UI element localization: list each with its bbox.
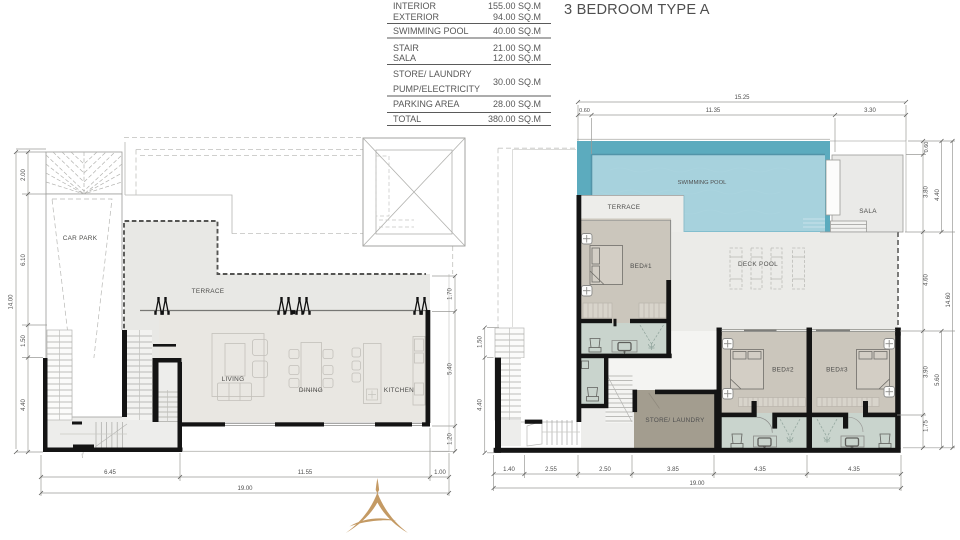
svg-text:2.50: 2.50 (599, 467, 611, 473)
svg-text:28.00 SQ.M: 28.00 SQ.M (493, 99, 541, 109)
svg-text:15.25: 15.25 (734, 95, 750, 101)
svg-text:3 BEDROOM TYPE A: 3 BEDROOM TYPE A (564, 2, 710, 18)
svg-text:4.60: 4.60 (924, 274, 930, 286)
svg-text:DECK POOL: DECK POOL (738, 261, 778, 268)
svg-text:11.35: 11.35 (706, 108, 721, 114)
svg-text:14.60: 14.60 (946, 292, 952, 308)
svg-text:19.00: 19.00 (689, 481, 705, 487)
svg-text:TERRACE: TERRACE (608, 204, 641, 211)
svg-text:INTERIOR: INTERIOR (393, 1, 437, 11)
svg-text:21.00 SQ.M: 21.00 SQ.M (493, 43, 541, 53)
svg-text:3.80: 3.80 (924, 186, 930, 198)
svg-text:11.55: 11.55 (298, 470, 313, 476)
svg-text:EXTERIOR: EXTERIOR (393, 12, 440, 22)
svg-text:STORE/ LAUNDRY: STORE/ LAUNDRY (645, 417, 705, 424)
svg-text:1.00: 1.00 (434, 470, 446, 476)
svg-text:3.90: 3.90 (924, 366, 930, 378)
svg-text:STORE/ LAUNDRY: STORE/ LAUNDRY (393, 69, 472, 79)
svg-text:1.50: 1.50 (21, 335, 27, 347)
svg-text:KITCHEN: KITCHEN (384, 387, 414, 394)
svg-text:4.40: 4.40 (478, 399, 484, 411)
svg-text:1.40: 1.40 (503, 467, 515, 473)
svg-text:155.00 SQ.M: 155.00 SQ.M (488, 1, 541, 11)
svg-text:TOTAL: TOTAL (393, 114, 421, 124)
svg-text:2.55: 2.55 (545, 467, 557, 473)
svg-text:4.40: 4.40 (21, 399, 27, 411)
svg-text:STAIR: STAIR (393, 43, 419, 53)
svg-text:TERRACE: TERRACE (192, 288, 225, 295)
svg-text:5.40: 5.40 (448, 363, 454, 375)
svg-text:30.00 SQ.M: 30.00 SQ.M (493, 77, 541, 87)
svg-text:LIVING: LIVING (222, 376, 245, 383)
svg-text:6.10: 6.10 (21, 254, 27, 266)
svg-text:40.00 SQ.M: 40.00 SQ.M (493, 26, 541, 36)
svg-text:3.30: 3.30 (864, 108, 876, 114)
svg-text:1.50: 1.50 (478, 336, 484, 348)
svg-text:0.60: 0.60 (924, 142, 930, 153)
svg-text:4.35: 4.35 (848, 467, 860, 473)
svg-text:BED#1: BED#1 (630, 263, 652, 270)
svg-text:0.60: 0.60 (579, 108, 590, 114)
svg-text:1.20: 1.20 (448, 433, 454, 445)
svg-text:1.70: 1.70 (448, 288, 454, 300)
svg-text:4.35: 4.35 (754, 467, 766, 473)
svg-text:BED#2: BED#2 (772, 367, 794, 374)
svg-text:PUMP/ELECTRICITY: PUMP/ELECTRICITY (393, 84, 480, 94)
svg-text:BED#3: BED#3 (826, 367, 848, 374)
svg-text:5.60: 5.60 (935, 374, 941, 386)
svg-text:SALA: SALA (393, 53, 416, 63)
svg-text:CAR PARK: CAR PARK (63, 235, 98, 242)
svg-text:SWIMMING POOL: SWIMMING POOL (678, 180, 727, 186)
svg-text:SWIMMING POOL: SWIMMING POOL (393, 26, 469, 36)
svg-text:2.00: 2.00 (21, 169, 27, 181)
svg-text:PARKING AREA: PARKING AREA (393, 99, 459, 109)
svg-text:380.00 SQ.M: 380.00 SQ.M (488, 114, 541, 124)
svg-text:19.00: 19.00 (237, 486, 253, 492)
svg-text:1.75: 1.75 (924, 420, 930, 432)
svg-text:94.00 SQ.M: 94.00 SQ.M (493, 12, 541, 22)
svg-text:12.00 SQ.M: 12.00 SQ.M (493, 53, 541, 63)
svg-text:14.00: 14.00 (9, 294, 15, 310)
svg-text:DINING: DINING (299, 387, 323, 394)
svg-text:SALA: SALA (859, 208, 877, 215)
svg-text:6.45: 6.45 (104, 470, 116, 476)
svg-text:4.40: 4.40 (935, 189, 941, 201)
svg-text:3.85: 3.85 (667, 467, 679, 473)
